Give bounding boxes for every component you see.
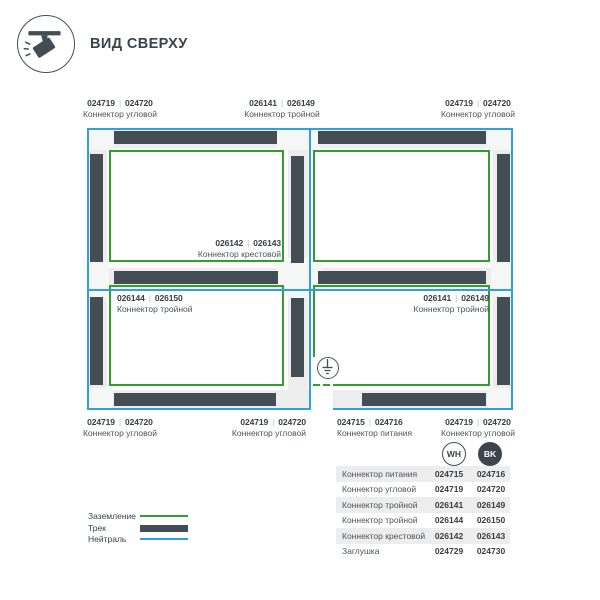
part-number-bk: 024720: [278, 417, 306, 427]
track-segment: [291, 156, 304, 263]
connector-name: Коннектор угловой: [146, 428, 306, 439]
part-name: Коннектор крестовой: [336, 531, 426, 541]
connector-label: 026141|026149 Коннектор тройной: [202, 98, 362, 120]
separator: |: [115, 98, 125, 108]
legend-item-ground: Заземление: [88, 511, 198, 523]
connector-name: Коннектор угловой: [398, 109, 558, 120]
legend: Заземление Трек Нейтраль: [88, 511, 198, 546]
part-numbers: 026141|026149: [202, 98, 362, 109]
neutral-line-center-horizontal: [87, 289, 513, 291]
track-segment: [90, 297, 103, 385]
neutral-line-top: [87, 128, 513, 130]
connector-label: 024719|024720 Коннектор угловой: [40, 98, 200, 120]
neutral-line-center-vertical: [309, 128, 311, 410]
ground-dash: [323, 384, 330, 386]
part-number-bk: 024720: [483, 417, 511, 427]
part-number-wh: 026144: [117, 293, 145, 303]
corner-connector-top-left: [87, 128, 113, 150]
part-number-wh: 026141: [423, 293, 451, 303]
part-number-bk: 026149: [461, 293, 489, 303]
part-number-bk: 026143: [472, 531, 510, 541]
legend-label: Нейтраль: [88, 534, 126, 544]
connector-label: 024719|024720 Коннектор угловой: [398, 98, 558, 120]
part-name: Заглушка: [336, 546, 426, 556]
connector-name: Коннектор тройной: [329, 304, 489, 315]
part-name: Коннектор тройной: [336, 515, 426, 525]
track-segment: [114, 393, 276, 406]
separator: |: [473, 417, 483, 427]
part-number-wh: 024719: [445, 98, 473, 108]
part-name: Коннектор тройной: [336, 500, 426, 510]
separator: |: [473, 98, 483, 108]
corner-connector-bottom-left: [87, 388, 113, 410]
part-number-wh: 026141: [426, 500, 472, 510]
connector-label: 024719|024720 Коннектор угловой: [398, 417, 558, 439]
separator: |: [365, 417, 375, 427]
part-name: Коннектор угловой: [336, 484, 426, 494]
part-numbers: 026142|026143: [121, 238, 281, 249]
part-number-wh: 024719: [240, 417, 268, 427]
part-number-bk: 026143: [253, 238, 281, 248]
separator: |: [145, 293, 155, 303]
connector-name: Коннектор угловой: [398, 428, 558, 439]
table-row: Коннектор крестовой 026142 026143: [336, 528, 510, 544]
parts-table: Коннектор питания 024715 024716 Коннекто…: [336, 466, 510, 559]
part-numbers: 026144|026150: [117, 293, 277, 304]
table-row: Заглушка 024729 024730: [336, 544, 510, 560]
track-segment: [90, 154, 103, 262]
neutral-line-swatch: [140, 538, 188, 540]
track-segment: [114, 131, 277, 144]
track-segment: [318, 271, 486, 284]
table-row: Коннектор питания 024715 024716: [336, 466, 510, 482]
separator: |: [268, 417, 278, 427]
t-connector-mid-right: [491, 260, 513, 298]
track-segment: [291, 298, 304, 377]
legend-item-neutral: Нейтраль: [88, 534, 198, 546]
track-segment: [497, 297, 510, 385]
legend-label: Заземление: [88, 511, 136, 521]
connector-name: Коннектор угловой: [40, 109, 200, 120]
part-numbers: 024719|024720: [398, 98, 558, 109]
ground-loop-bottom-right-bottom-edge: [333, 384, 490, 386]
earth-ground-icon: [318, 358, 337, 377]
part-numbers: 024719|024720: [40, 98, 200, 109]
corner-connector-top-right: [487, 128, 513, 150]
part-number-wh: 026142: [215, 238, 243, 248]
connector-name: Коннектор тройной: [117, 304, 277, 315]
part-number-wh: 024719: [87, 98, 115, 108]
legend-label: Трек: [88, 523, 106, 533]
part-number-wh: 024715: [426, 469, 472, 479]
connector-name: Коннектор тройной: [202, 109, 362, 120]
neutral-line-bottom-right: [333, 408, 513, 410]
table-row: Коннектор тройной 026141 026149: [336, 497, 510, 513]
neutral-line-bottom-left: [87, 408, 311, 410]
separator: |: [277, 98, 287, 108]
part-numbers: 024719|024720: [146, 417, 306, 428]
legend-item-track: Трек: [88, 523, 198, 535]
part-number-wh: 024729: [426, 546, 472, 556]
part-number-wh: 024719: [426, 484, 472, 494]
track-light-logo: [17, 15, 75, 73]
track-segment: [114, 271, 278, 284]
neutral-line-left: [87, 128, 89, 410]
ground-dash: [313, 384, 320, 386]
t-connector-mid-left: [87, 260, 109, 298]
part-number-bk: 024720: [472, 484, 510, 494]
part-number-wh: 026141: [249, 98, 277, 108]
t-connector-top-center: [277, 128, 319, 150]
part-number-wh: 026142: [426, 531, 472, 541]
track-bar-swatch: [140, 525, 188, 532]
ground-line-swatch: [140, 515, 188, 517]
part-number-bk: 026150: [155, 293, 183, 303]
part-numbers: 026141|026149: [329, 293, 489, 304]
cross-connector-center: [286, 258, 310, 298]
part-number-bk: 024720: [483, 98, 511, 108]
separator: |: [243, 238, 253, 248]
connector-label: 026144|026150 Коннектор тройной: [117, 293, 277, 315]
table-row: Коннектор тройной 026144 026150: [336, 513, 510, 529]
part-number-bk: 024730: [472, 546, 510, 556]
earth-ground-symbol: [317, 357, 339, 379]
page-title: ВИД СВЕРХУ: [90, 36, 188, 52]
table-row: Коннектор угловой 024719 024720: [336, 482, 510, 498]
part-numbers: 024719|024720: [398, 417, 558, 428]
part-number-bk: 026149: [287, 98, 315, 108]
color-badge-white: WH: [442, 442, 466, 466]
separator: |: [451, 293, 461, 303]
part-number-bk: 024716: [472, 469, 510, 479]
part-number-bk: 026150: [472, 515, 510, 525]
connector-label: 026141|026149 Коннектор тройной: [329, 293, 489, 315]
part-number-bk: 024720: [125, 98, 153, 108]
neutral-line-right: [511, 128, 513, 410]
part-number-wh: 024719: [445, 417, 473, 427]
connector-name: Коннектор крестовой: [121, 249, 281, 260]
track-light-icon: [18, 16, 71, 69]
part-number-wh: 026144: [426, 515, 472, 525]
track-segment: [318, 131, 486, 144]
connector-label: 024719|024720 Коннектор угловой: [146, 417, 306, 439]
ground-loop-top-right: [313, 150, 490, 262]
track-segment: [497, 154, 510, 262]
part-number-bk: 026149: [472, 500, 510, 510]
ground-loop-bottom-right-left-edge: [313, 285, 315, 357]
color-badge-black: BK: [478, 442, 502, 466]
part-name: Коннектор питания: [336, 469, 426, 479]
part-number-wh: 024719: [87, 417, 115, 427]
track-segment: [362, 393, 486, 406]
separator: |: [115, 417, 125, 427]
corner-connector-bottom-right: [487, 388, 513, 410]
part-number-wh: 024715: [337, 417, 365, 427]
connector-label: 026142|026143 Коннектор крестовой: [121, 238, 281, 260]
